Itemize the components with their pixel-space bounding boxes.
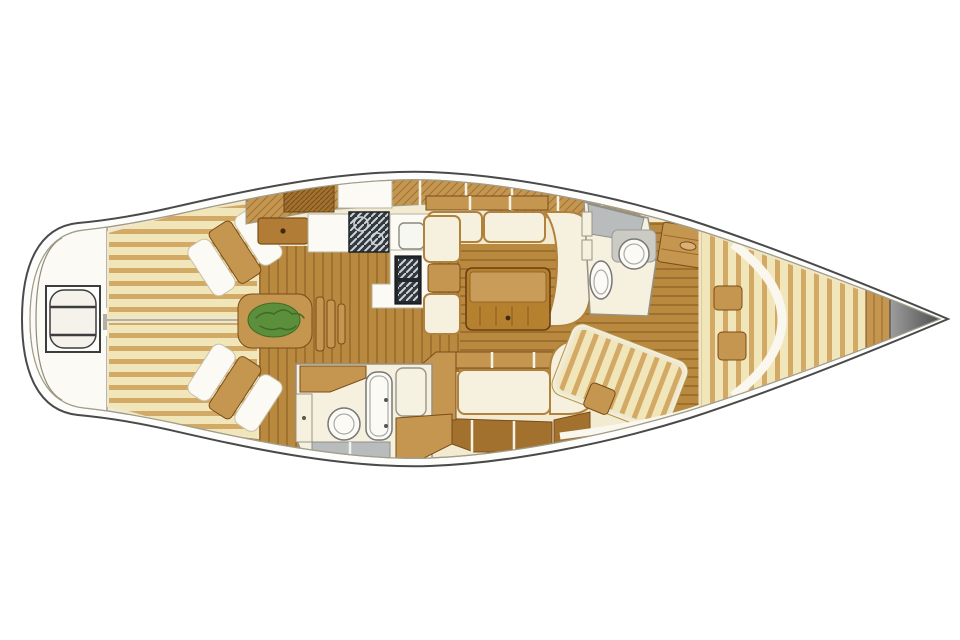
aft-head (296, 364, 452, 462)
settee-cushion-left-2 (424, 294, 460, 334)
aft-head-shower-door (366, 372, 392, 440)
swim-ladder (46, 286, 100, 352)
boat-floor-plan (0, 0, 960, 640)
v-berth-step-2 (718, 332, 746, 360)
companionway-step-2 (327, 300, 335, 348)
settee-top-backrest (426, 196, 548, 210)
starboard-settee-cushion (458, 370, 550, 414)
galley-fridge (395, 256, 421, 304)
companionway-step-1 (316, 297, 324, 351)
saloon-table (466, 268, 550, 330)
settee-side-table (428, 264, 460, 292)
aft-head-seat (396, 368, 426, 416)
aft-head-toilet (328, 408, 360, 440)
settee-cushion-left-1 (424, 216, 460, 262)
companionway-step-3 (338, 304, 345, 344)
plant-on-steps (248, 303, 300, 337)
forward-head-toilet (590, 261, 612, 299)
galley-counter-stove-side (308, 214, 352, 252)
forward-head-shelf-2 (582, 240, 592, 260)
forward-head (582, 202, 656, 316)
companionway-steps (238, 294, 345, 351)
forward-head-shelf (582, 212, 592, 236)
v-berth-step-1 (714, 286, 742, 310)
galley-stove (349, 212, 389, 252)
floor-plan-canvas (0, 0, 960, 640)
settee-cushion-top-2 (484, 212, 545, 242)
